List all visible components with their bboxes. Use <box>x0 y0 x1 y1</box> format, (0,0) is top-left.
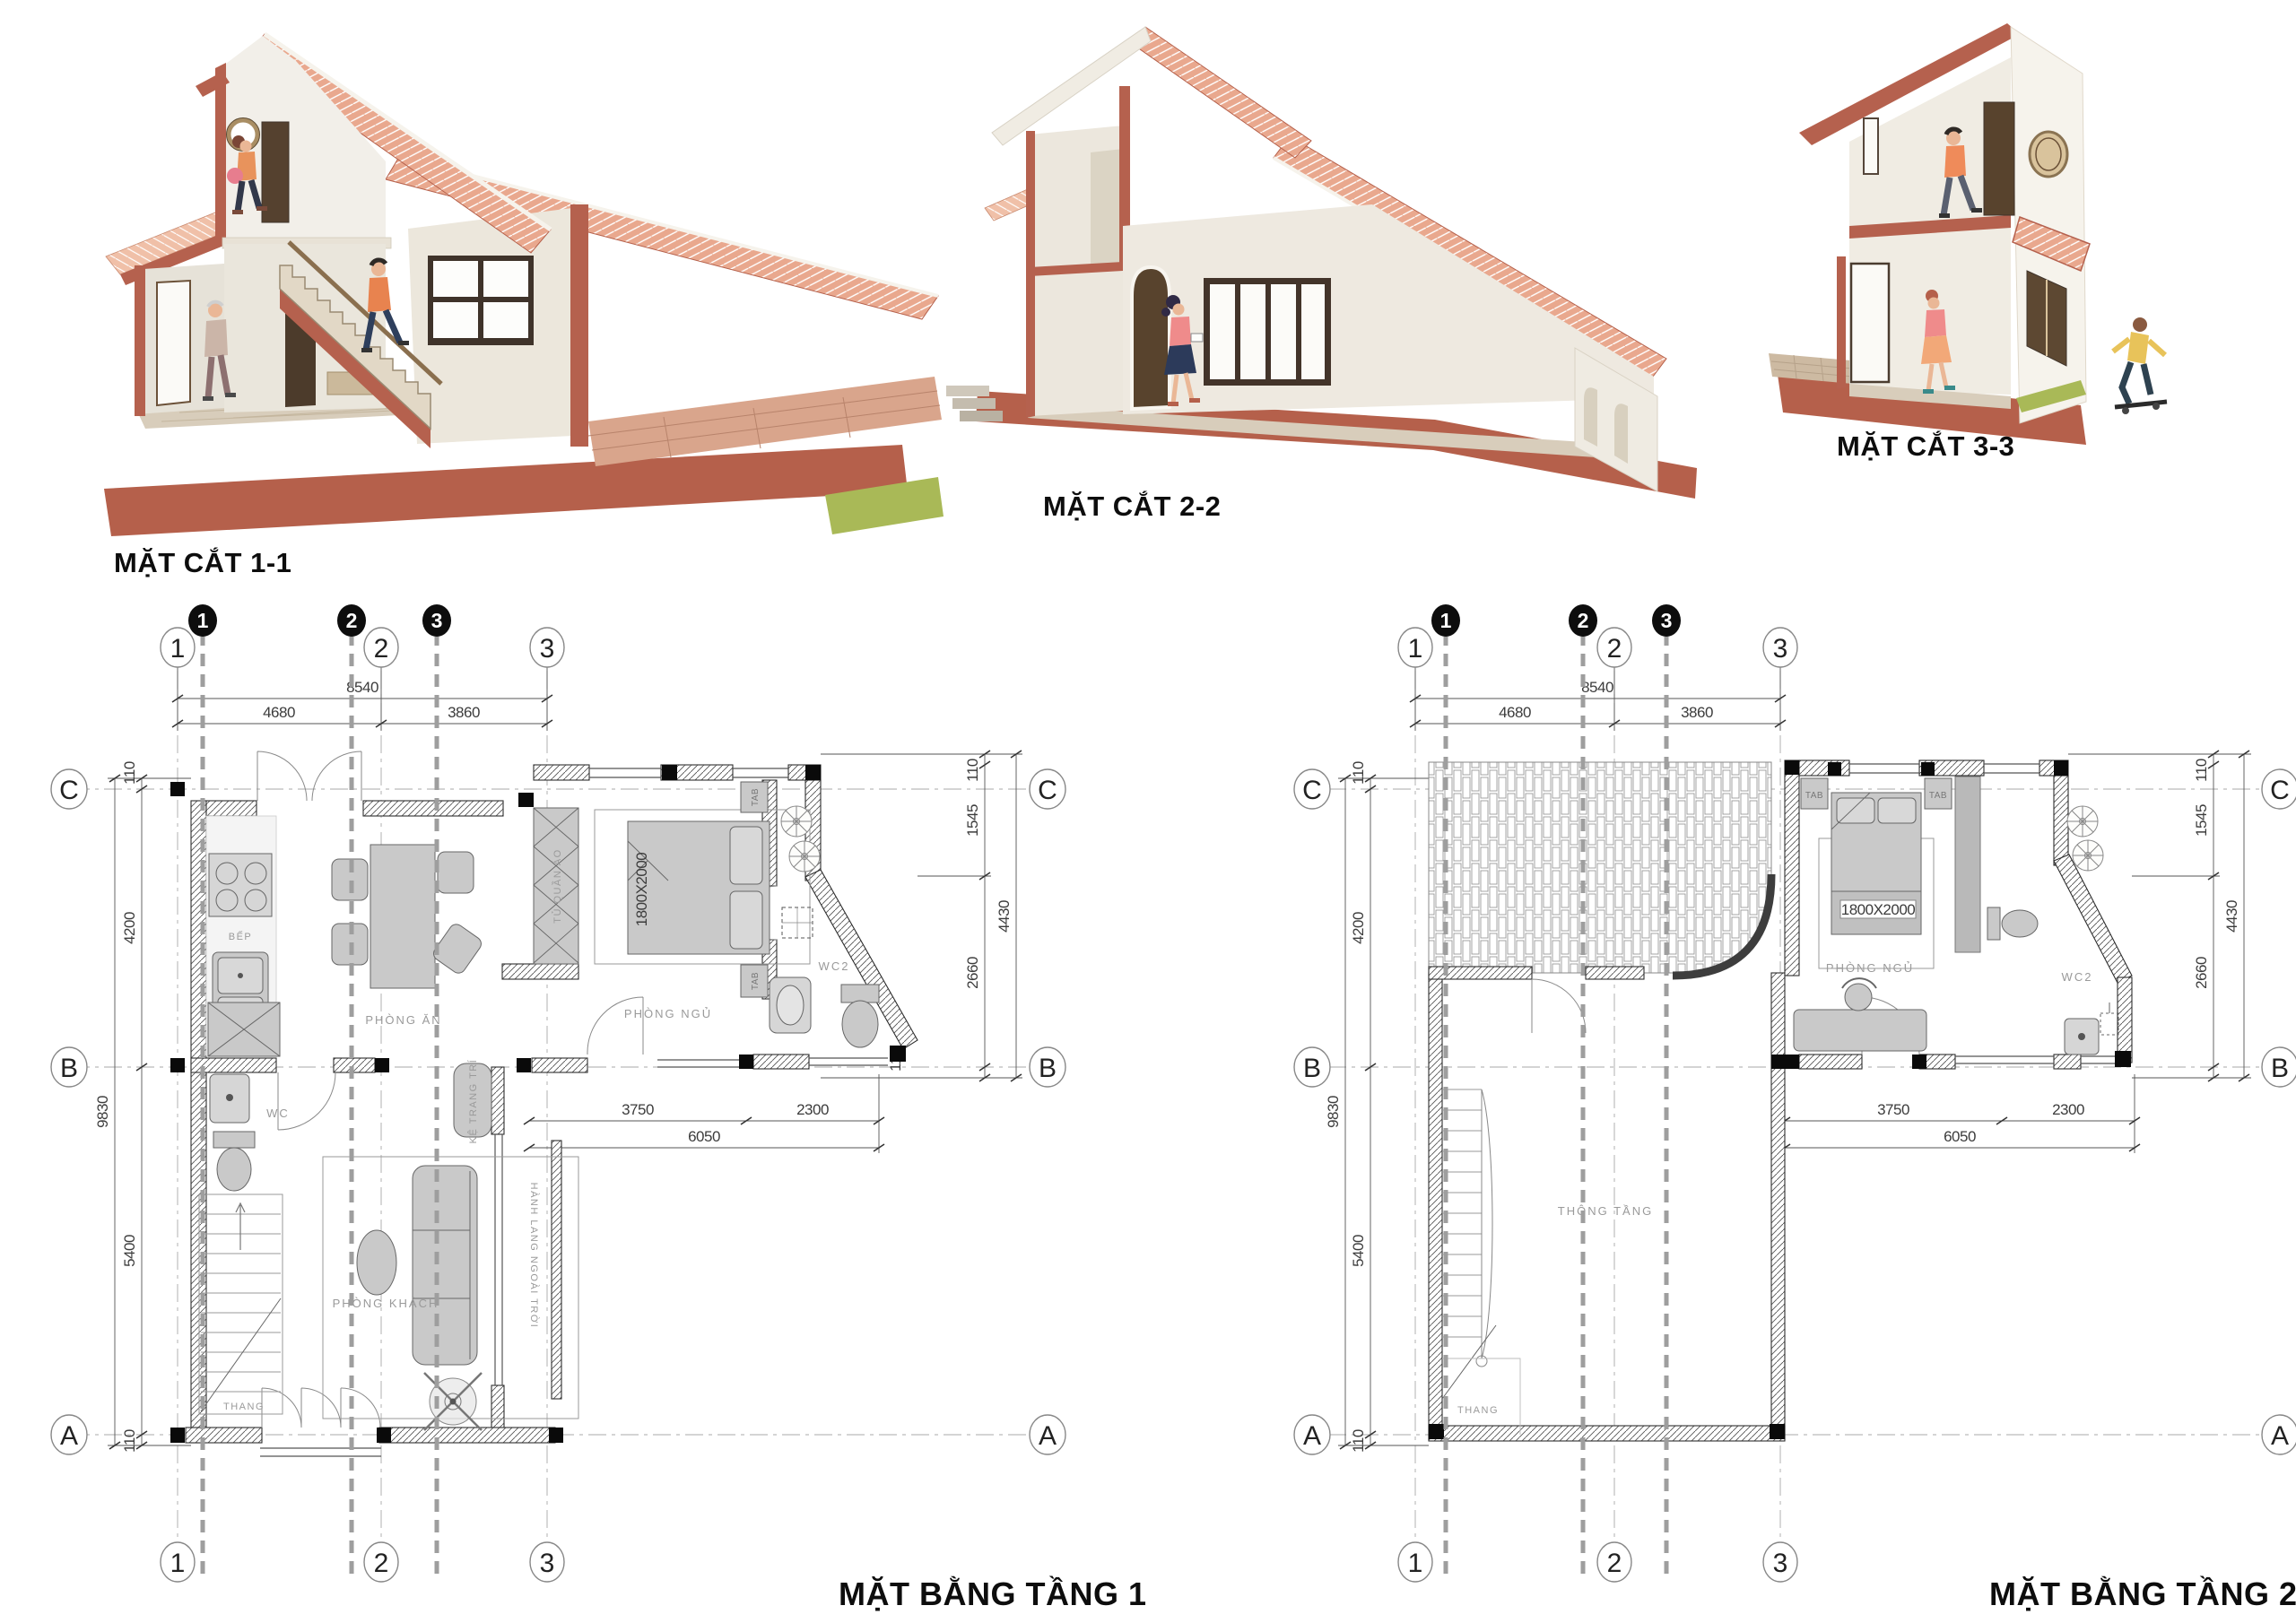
sofa <box>413 1166 477 1365</box>
desk-chair <box>1845 984 1872 1011</box>
wc2-2-label: WC2 <box>2062 970 2093 984</box>
svg-text:3750: 3750 <box>1877 1101 1909 1118</box>
svg-text:3: 3 <box>540 634 555 664</box>
svg-text:9830: 9830 <box>94 1096 111 1128</box>
svg-text:4680: 4680 <box>1499 704 1531 721</box>
svg-text:A: A <box>60 1421 78 1451</box>
svg-text:TAB: TAB <box>751 972 761 990</box>
svg-text:2300: 2300 <box>2052 1101 2084 1118</box>
wardrobe-label: TỦ QUẦN ÁO <box>552 848 563 923</box>
svg-text:2: 2 <box>374 1549 389 1578</box>
toilet <box>842 1001 878 1047</box>
svg-text:8540: 8540 <box>1581 679 1613 696</box>
svg-text:3750: 3750 <box>622 1101 654 1118</box>
svg-text:1: 1 <box>170 1549 186 1578</box>
shelf-label: KỆ TRANG TRÍ <box>467 1059 479 1144</box>
roof-below <box>1429 762 1771 973</box>
svg-text:110: 110 <box>964 759 981 782</box>
svg-text:4430: 4430 <box>996 900 1013 933</box>
svg-text:1: 1 <box>170 634 186 664</box>
bedroom2-label: PHÒNG NGỦ <box>1826 961 1914 975</box>
svg-text:3860: 3860 <box>1681 704 1713 721</box>
arch-door <box>1132 267 1170 409</box>
svg-text:A: A <box>1303 1421 1321 1451</box>
toilet <box>2002 910 2038 937</box>
floor2-plan: 8540 4680 3860 110 4200 9830 5400 110 11… <box>1294 604 2296 1612</box>
toilet <box>217 1148 251 1191</box>
svg-text:9830: 9830 <box>1325 1096 1342 1128</box>
svg-text:2: 2 <box>1607 634 1622 664</box>
svg-text:C: C <box>2270 776 2290 805</box>
bed-size-label: 1800X2000 <box>1841 901 1916 918</box>
svg-text:4430: 4430 <box>2223 900 2240 933</box>
architecture-sheet: MẶT CẮT 1-1 MẶT CẮT 2-2 <box>0 0 2296 1623</box>
upper-door <box>1984 102 2014 215</box>
svg-text:2660: 2660 <box>964 957 981 989</box>
ceiling-fan-symbol <box>424 1373 482 1430</box>
section-3-3-view: MẶT CẮT 3-3 <box>1769 23 2167 462</box>
svg-text:110: 110 <box>2193 759 2210 782</box>
svg-text:1: 1 <box>197 609 209 632</box>
svg-text:110: 110 <box>1350 761 1367 785</box>
svg-text:TAB: TAB <box>1929 791 1947 801</box>
svg-text:110: 110 <box>121 1429 138 1453</box>
svg-text:A: A <box>2271 1421 2289 1451</box>
bed-size-label: 1800X2000 <box>633 853 650 927</box>
svg-text:6050: 6050 <box>688 1128 720 1145</box>
floor1-plan: 8540 4680 3860 110 4200 9830 5400 110 11… <box>51 604 1147 1612</box>
floor2-title: MẶT BẰNG TẦNG 2 <box>1989 1575 2296 1612</box>
svg-text:3: 3 <box>1773 1549 1788 1578</box>
plinth <box>104 445 908 536</box>
svg-text:5400: 5400 <box>1350 1235 1367 1267</box>
ground-door <box>1851 264 1889 382</box>
door <box>157 281 190 405</box>
section-markers-floor1: 1 2 3 <box>188 604 451 637</box>
svg-text:2300: 2300 <box>796 1101 829 1118</box>
svg-text:1545: 1545 <box>2193 804 2210 837</box>
wc2-label: WC2 <box>819 959 850 973</box>
svg-text:2660: 2660 <box>2193 957 2210 989</box>
dining-label: PHÒNG ĂN <box>365 1013 441 1027</box>
svg-text:1: 1 <box>1408 1549 1423 1578</box>
svg-text:3: 3 <box>1661 609 1673 632</box>
section-1-label: MẶT CẮT 1-1 <box>114 546 291 578</box>
void-label: THÔNG TẦNG <box>1558 1204 1653 1218</box>
svg-text:1: 1 <box>1440 609 1452 632</box>
desk <box>1794 1010 1926 1051</box>
person-skateboarder <box>2113 317 2167 414</box>
svg-text:B: B <box>1303 1054 1321 1083</box>
svg-text:2: 2 <box>374 634 389 664</box>
svg-text:TAB: TAB <box>751 788 761 806</box>
svg-text:3: 3 <box>540 1549 555 1578</box>
section-2-label: MẶT CẮT 2-2 <box>1043 490 1221 522</box>
svg-text:110: 110 <box>1350 1429 1367 1453</box>
svg-text:2: 2 <box>346 609 358 632</box>
living-label: PHÒNG KHÁCH <box>333 1297 439 1310</box>
floor1-title: MẶT BẰNG TẦNG 1 <box>839 1575 1147 1612</box>
toilet-tank <box>213 1132 255 1148</box>
svg-text:B: B <box>1039 1054 1057 1083</box>
svg-text:3: 3 <box>1773 634 1788 664</box>
svg-text:5400: 5400 <box>121 1235 138 1267</box>
stairs-label: THANG <box>223 1402 265 1412</box>
toilet-tank <box>1987 907 2000 940</box>
svg-text:4200: 4200 <box>121 912 138 944</box>
chair <box>438 852 474 893</box>
bedroom-label: PHÒNG NGỦ <box>624 1007 712 1020</box>
kitchen-label: BẾP <box>229 931 253 942</box>
section-1-1-view: MẶT CẮT 1-1 <box>104 34 944 578</box>
svg-text:C: C <box>1302 776 1322 805</box>
coffee-table <box>357 1230 396 1295</box>
svg-text:C: C <box>59 776 79 805</box>
toilet-tank <box>841 985 879 1002</box>
corridor-label: HÀNH LANG NGOÀI TRỜI <box>528 1183 540 1329</box>
svg-text:3: 3 <box>431 609 443 632</box>
wc-label: WC <box>266 1107 290 1120</box>
stairs2-label: THANG <box>1457 1405 1499 1416</box>
wardrobe <box>1955 777 1980 952</box>
svg-text:3860: 3860 <box>448 704 480 721</box>
dining-table <box>370 845 435 988</box>
svg-text:B: B <box>60 1054 78 1083</box>
section-3-label: MẶT CẮT 3-3 <box>1837 430 2014 462</box>
svg-text:4680: 4680 <box>263 704 295 721</box>
svg-text:2: 2 <box>1578 609 1589 632</box>
drawing-canvas: MẶT CẮT 1-1 MẶT CẮT 2-2 <box>0 0 2296 1623</box>
section-markers-floor2: 1 2 3 <box>1431 604 1681 637</box>
section-2-2-view: MẶT CẮT 2-2 <box>946 27 1697 522</box>
svg-text:4200: 4200 <box>1350 912 1367 944</box>
svg-text:1: 1 <box>1408 634 1423 664</box>
svg-text:6050: 6050 <box>1944 1128 1976 1145</box>
svg-text:2: 2 <box>1607 1549 1622 1578</box>
svg-text:TAB: TAB <box>1805 791 1823 801</box>
svg-text:110: 110 <box>121 761 138 785</box>
svg-text:C: C <box>1038 776 1057 805</box>
svg-text:B: B <box>2271 1054 2289 1083</box>
svg-text:1545: 1545 <box>964 804 981 837</box>
svg-text:A: A <box>1039 1421 1057 1451</box>
